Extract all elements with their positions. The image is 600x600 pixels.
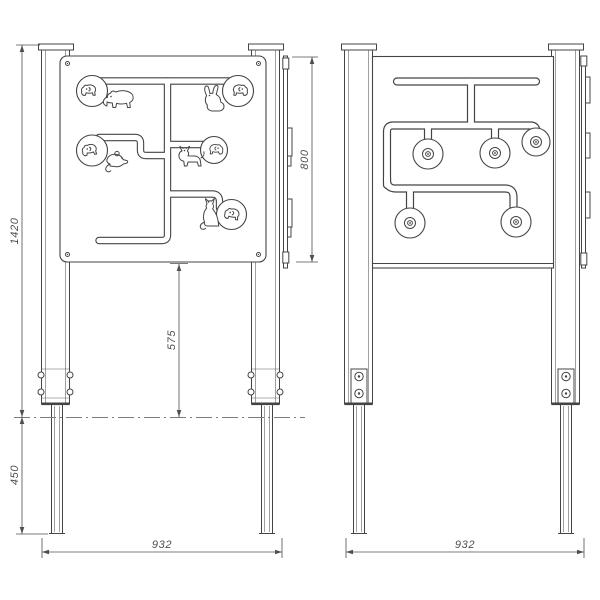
bolt-icon bbox=[277, 372, 283, 378]
back-knob-4 bbox=[395, 208, 425, 238]
post-cap bbox=[39, 44, 74, 50]
back-right-leg bbox=[558, 404, 574, 534]
front-right-leg bbox=[259, 404, 275, 534]
dim-panel-height-label: 800 bbox=[299, 149, 311, 169]
back-panel bbox=[373, 57, 554, 269]
technical-drawing: 1420 800 575 450 bbox=[0, 0, 600, 600]
back-knob-2 bbox=[480, 138, 510, 168]
dim-width-front-label: 932 bbox=[152, 539, 172, 551]
back-left-leg bbox=[351, 404, 367, 534]
front-knob-4 bbox=[201, 137, 228, 164]
front-knob-3 bbox=[77, 135, 108, 166]
back-left-post bbox=[342, 44, 377, 405]
back-knob-1 bbox=[413, 139, 443, 169]
dim-width-back: 932 bbox=[346, 538, 584, 558]
bolt-icon bbox=[38, 372, 44, 378]
dim-clearance-label: 575 bbox=[166, 330, 178, 350]
dim-width-front: 932 bbox=[42, 538, 282, 558]
front-view bbox=[38, 44, 292, 534]
bolt-icon bbox=[38, 389, 44, 395]
front-knob-1 bbox=[77, 76, 108, 107]
post-cap bbox=[249, 44, 284, 50]
dim-embed-depth: 450 bbox=[9, 417, 48, 534]
back-mount-bracket-profile bbox=[581, 56, 590, 268]
front-left-leg bbox=[49, 404, 65, 534]
front-knob-2 bbox=[223, 76, 254, 107]
dim-total-height: 1420 bbox=[9, 45, 40, 417]
back-knob-3 bbox=[522, 128, 550, 156]
dim-embed-depth-label: 450 bbox=[9, 465, 21, 485]
bolt-icon bbox=[248, 389, 254, 395]
dim-panel-height: 800 bbox=[292, 57, 318, 262]
dim-clearance: 575 bbox=[166, 264, 188, 418]
post-cap bbox=[549, 44, 584, 50]
dim-total-height-label: 1420 bbox=[9, 217, 21, 244]
front-mount-bracket-profile bbox=[283, 56, 292, 268]
bolt-icon bbox=[67, 372, 73, 378]
bolt-icon bbox=[277, 389, 283, 395]
dim-width-back-label: 932 bbox=[455, 539, 475, 551]
post-cap bbox=[342, 44, 377, 50]
back-knob-5 bbox=[501, 207, 531, 237]
front-knob-5 bbox=[217, 200, 247, 230]
drawing-canvas: 1420 800 575 450 bbox=[0, 0, 600, 600]
back-view bbox=[342, 44, 591, 534]
bolt-icon bbox=[248, 372, 254, 378]
bolt-icon bbox=[67, 389, 73, 395]
